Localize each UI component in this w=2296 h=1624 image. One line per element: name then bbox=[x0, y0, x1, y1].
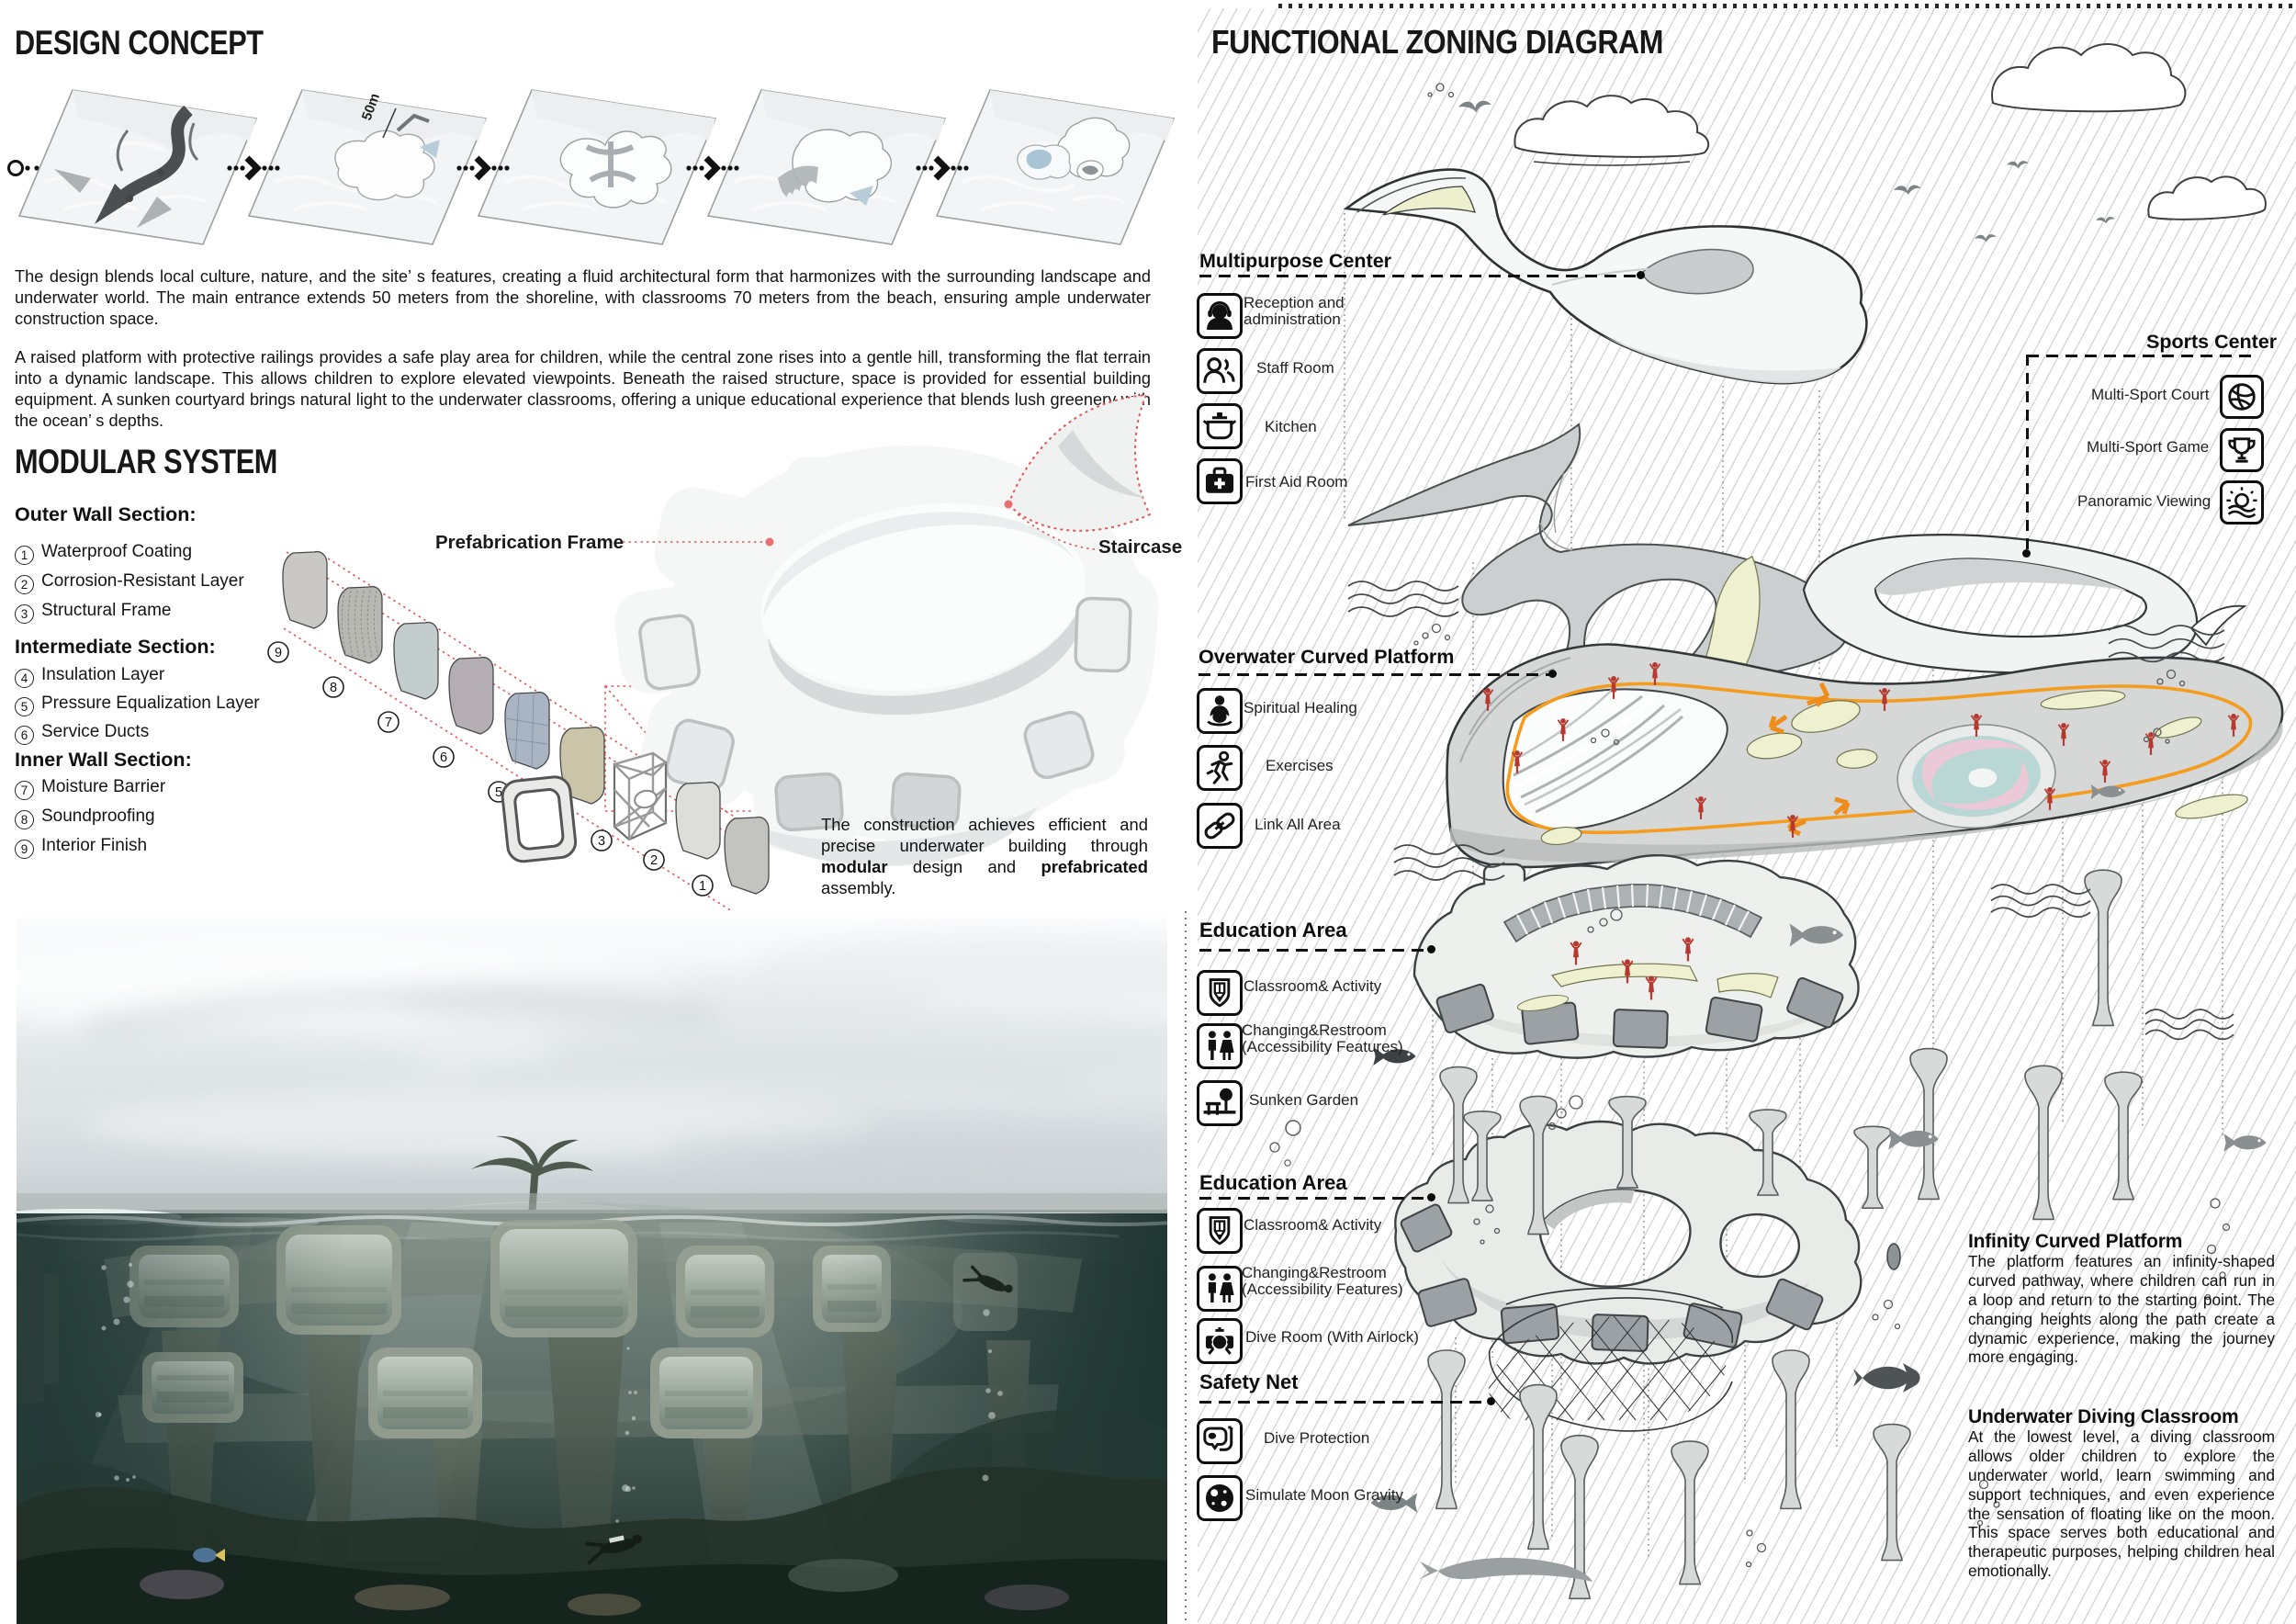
svg-text:3: 3 bbox=[598, 834, 605, 849]
svg-text:8: 8 bbox=[330, 681, 337, 695]
svg-text:7: 7 bbox=[385, 716, 392, 730]
svg-text:6: 6 bbox=[440, 750, 447, 765]
svg-text:9: 9 bbox=[275, 646, 282, 660]
svg-text:2: 2 bbox=[650, 853, 658, 868]
svg-text:1: 1 bbox=[699, 879, 706, 894]
